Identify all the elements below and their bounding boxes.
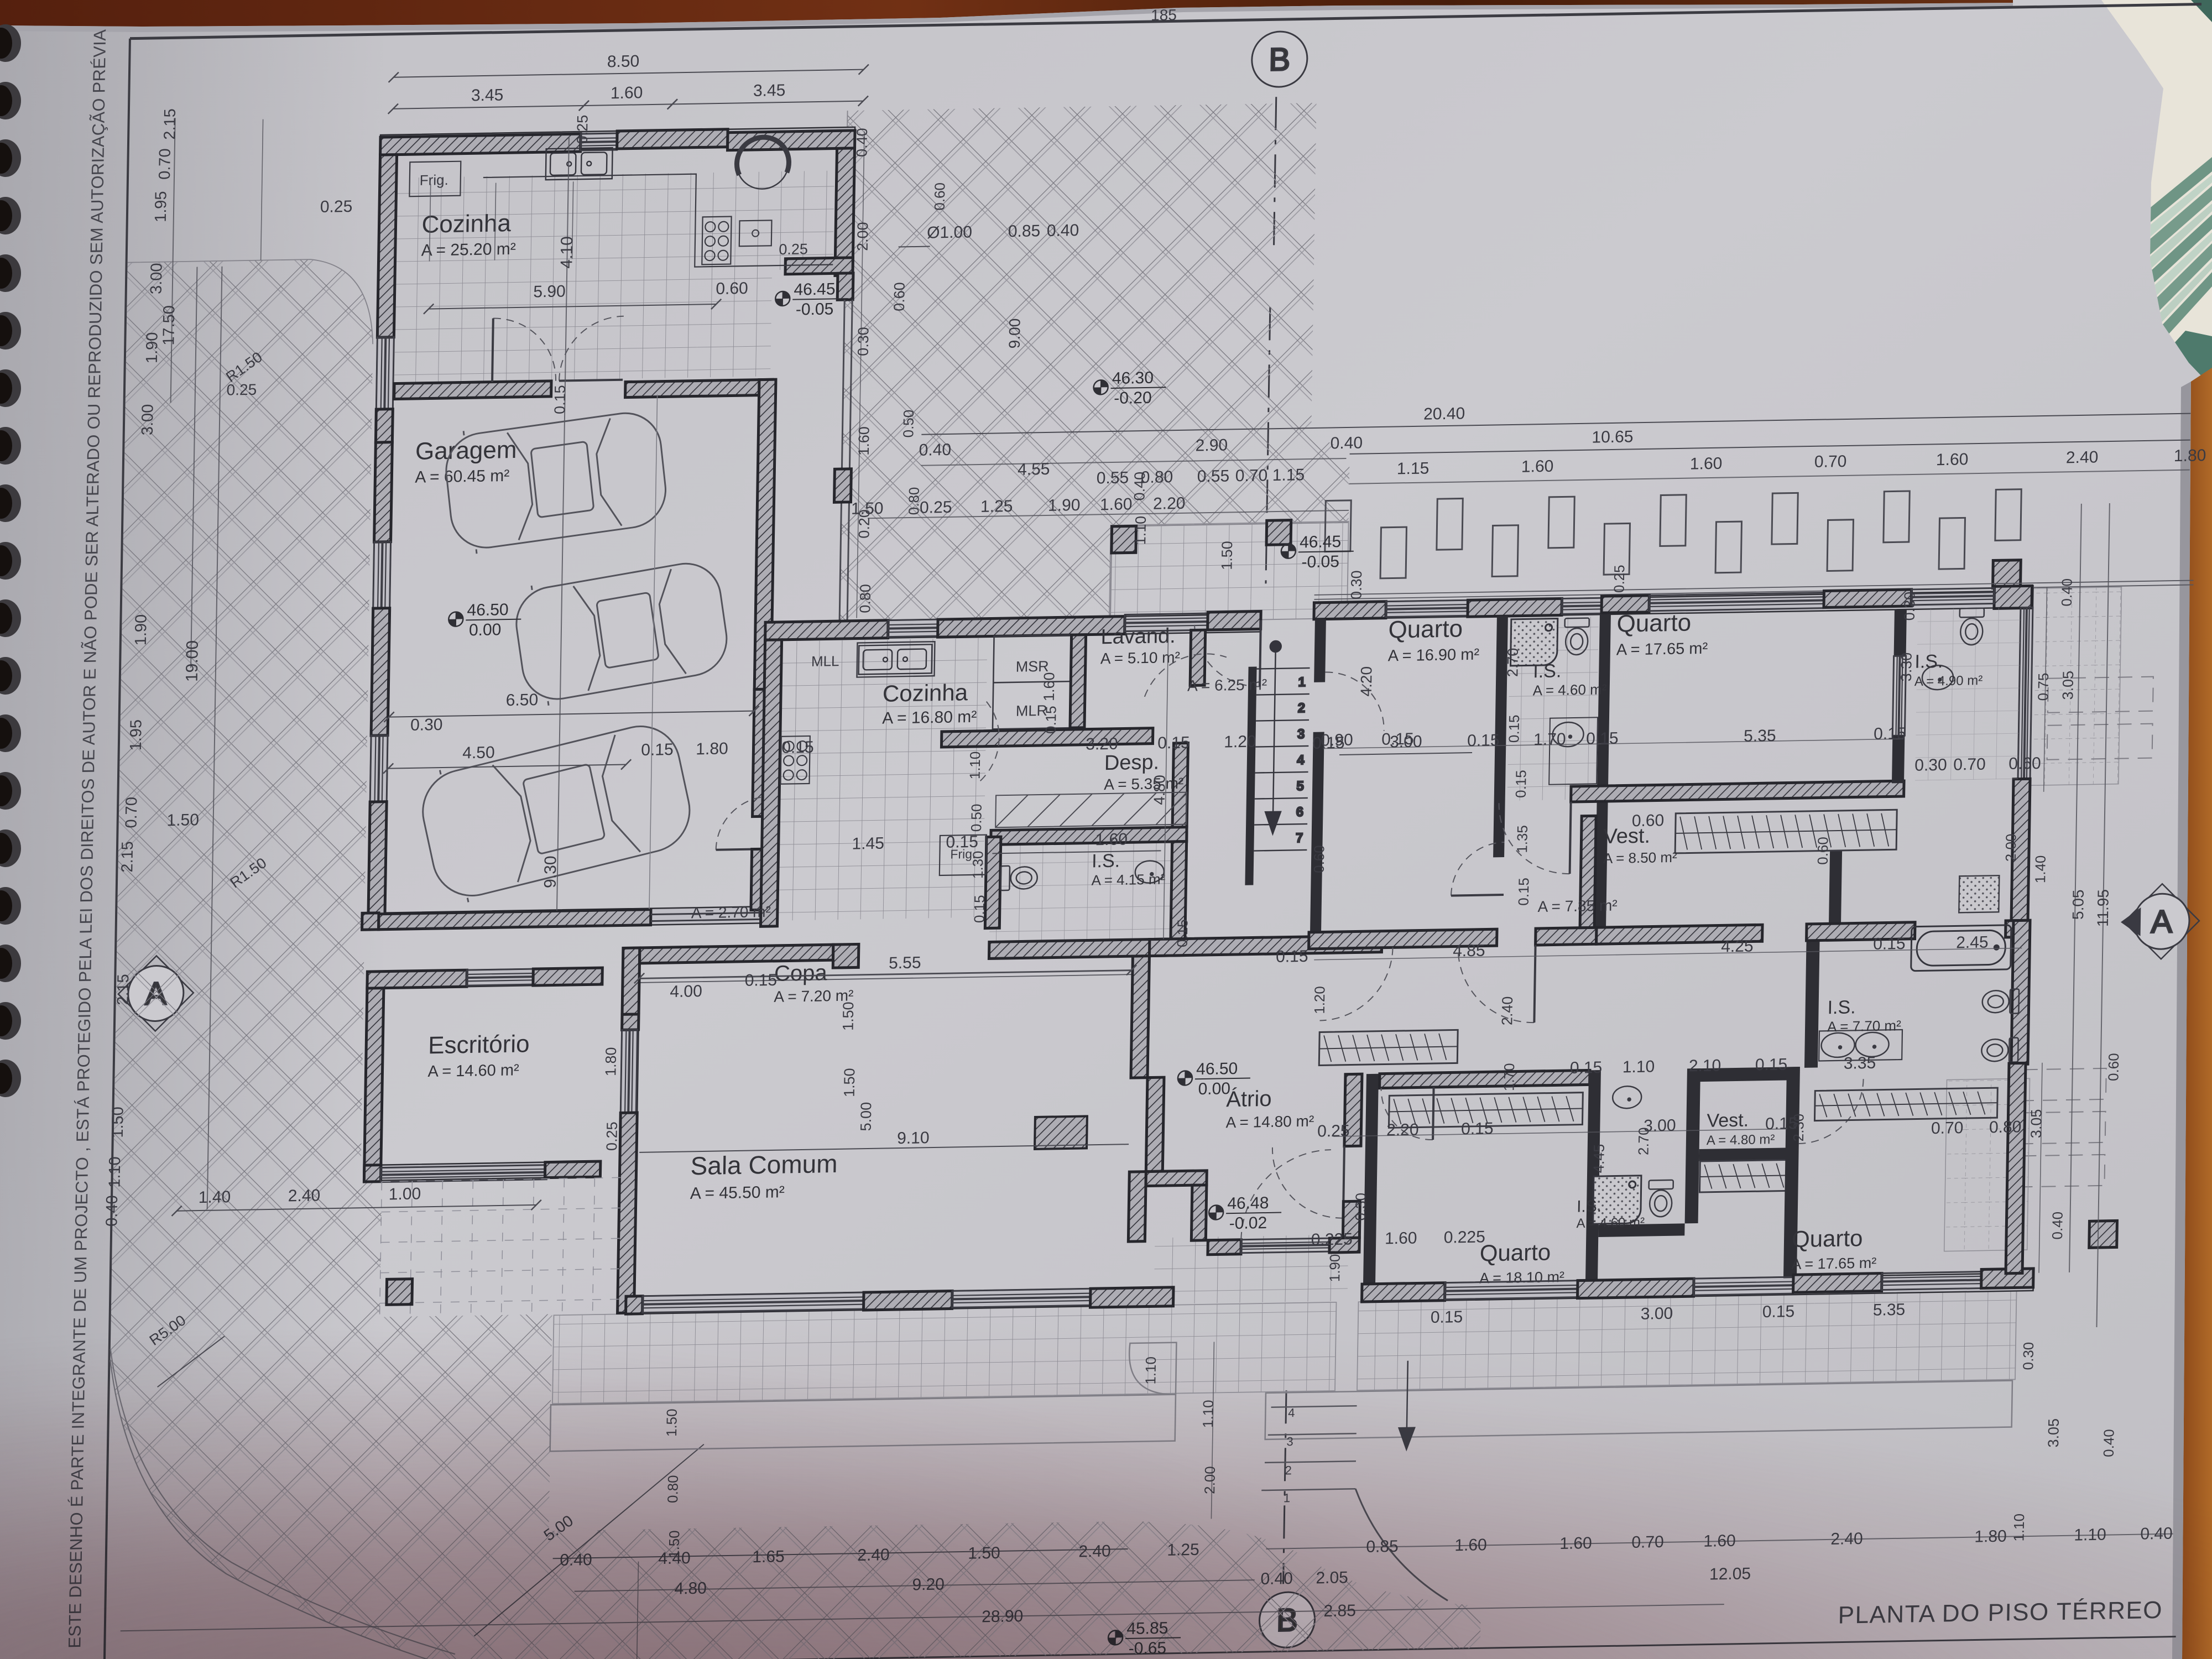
svg-text:A = 8.50 m²: A = 8.50 m²: [1603, 849, 1677, 867]
svg-text:3.45: 3.45: [753, 81, 786, 100]
svg-text:I.S.: I.S.: [1914, 651, 1943, 672]
svg-text:A: A: [2151, 904, 2173, 940]
svg-text:0.70: 0.70: [1814, 452, 1847, 471]
svg-text:3.30: 3.30: [1898, 653, 1915, 682]
svg-text:0.70: 0.70: [1235, 466, 1268, 485]
svg-text:46.45: 46.45: [794, 280, 836, 299]
svg-text:A = 4.90 m²: A = 4.90 m²: [1914, 673, 1983, 689]
svg-text:A = 7.85 m²: A = 7.85 m²: [1537, 897, 1617, 915]
svg-text:0.15: 0.15: [1276, 947, 1308, 966]
svg-text:185: 185: [1151, 6, 1177, 24]
svg-text:2.90: 2.90: [1195, 436, 1228, 455]
svg-text:0.55: 0.55: [1097, 468, 1129, 487]
svg-text:1.70: 1.70: [1533, 730, 1566, 749]
svg-text:5: 5: [1296, 779, 1304, 794]
svg-text:0.25: 0.25: [779, 241, 808, 258]
svg-text:46.50: 46.50: [467, 601, 509, 619]
svg-text:1.50: 1.50: [1218, 541, 1235, 570]
svg-text:0.85: 0.85: [1008, 222, 1041, 241]
svg-text:0.15: 0.15: [1042, 706, 1060, 734]
svg-text:1.35: 1.35: [1514, 825, 1531, 853]
svg-text:0.55: 0.55: [1197, 467, 1230, 486]
svg-text:1.60: 1.60: [1690, 455, 1723, 473]
svg-text:9.30: 9.30: [541, 855, 560, 888]
svg-text:1.80: 1.80: [696, 739, 728, 758]
svg-text:0.15: 0.15: [551, 385, 568, 414]
svg-text:0.80: 0.80: [905, 487, 922, 515]
svg-text:I.S.: I.S.: [1533, 660, 1562, 682]
svg-text:0.15: 0.15: [641, 740, 674, 759]
svg-text:0.30: 0.30: [855, 327, 872, 356]
svg-text:4.10: 4.10: [557, 236, 576, 269]
svg-text:0.25: 0.25: [920, 498, 952, 517]
svg-text:0.60: 0.60: [1632, 811, 1665, 830]
svg-text:2.15: 2.15: [161, 108, 179, 140]
svg-text:A = 60.45 m²: A = 60.45 m²: [415, 467, 509, 487]
svg-text:0.40: 0.40: [1131, 472, 1148, 501]
svg-text:0.70: 0.70: [123, 797, 141, 828]
svg-text:20.40: 20.40: [1423, 404, 1465, 423]
svg-text:1.60: 1.60: [855, 426, 873, 456]
svg-text:A = 4.15 m²: A = 4.15 m²: [1091, 870, 1165, 888]
svg-text:1.40: 1.40: [2032, 855, 2049, 883]
svg-text:Ø1.00: Ø1.00: [927, 223, 972, 242]
svg-text:1.15: 1.15: [1397, 459, 1430, 478]
svg-text:0.50: 0.50: [900, 410, 917, 438]
svg-text:1.60: 1.60: [1041, 672, 1058, 701]
svg-text:0.40: 0.40: [919, 441, 951, 460]
svg-text:1.10: 1.10: [1132, 516, 1149, 545]
svg-text:0.15: 0.15: [1157, 734, 1190, 753]
svg-text:4: 4: [1297, 753, 1305, 768]
svg-text:1.60: 1.60: [1936, 450, 1969, 469]
svg-text:2.70: 2.70: [1504, 648, 1521, 677]
svg-text:0.25: 0.25: [320, 197, 353, 216]
svg-text:3.20: 3.20: [1086, 735, 1118, 754]
svg-text:1.15: 1.15: [1272, 466, 1305, 484]
svg-text:A = 4.60 m²: A = 4.60 m²: [1533, 681, 1607, 698]
svg-text:0.15: 0.15: [971, 895, 988, 923]
svg-text:0.15: 0.15: [946, 833, 978, 852]
svg-text:0.15: 0.15: [1515, 878, 1532, 906]
svg-text:5.35: 5.35: [1744, 727, 1776, 745]
svg-text:0.20: 0.20: [855, 509, 873, 539]
svg-text:6: 6: [1296, 805, 1304, 820]
svg-text:1.90: 1.90: [143, 332, 161, 363]
svg-text:1.60: 1.60: [611, 84, 643, 102]
svg-text:0.15: 0.15: [744, 971, 777, 990]
svg-text:1.95: 1.95: [152, 191, 170, 222]
svg-text:8.50: 8.50: [607, 52, 640, 71]
svg-text:B: B: [1269, 41, 1291, 78]
svg-text:A = 17.65 m²: A = 17.65 m²: [1616, 640, 1708, 659]
svg-text:3.00: 3.00: [148, 263, 166, 294]
svg-text:0.25: 0.25: [1611, 565, 1628, 593]
svg-text:7: 7: [1296, 831, 1303, 846]
svg-text:5.05: 5.05: [2069, 889, 2087, 920]
svg-text:0.25: 0.25: [574, 115, 591, 144]
svg-text:3.00: 3.00: [1390, 733, 1422, 752]
svg-text:2.40: 2.40: [2066, 448, 2099, 467]
svg-text:4.50: 4.50: [462, 743, 495, 762]
svg-text:0.70: 0.70: [1953, 755, 1986, 774]
svg-text:1.60: 1.60: [1095, 830, 1128, 849]
svg-text:6.50: 6.50: [506, 691, 539, 709]
svg-text:0.40: 0.40: [1047, 221, 1079, 240]
svg-text:5.90: 5.90: [533, 282, 566, 301]
svg-text:0.15: 0.15: [1874, 724, 1906, 743]
svg-text:11.95: 11.95: [2094, 889, 2112, 927]
svg-text:1.50: 1.50: [166, 811, 199, 830]
svg-text:4.80: 4.80: [1151, 775, 1168, 805]
svg-text:-0.20: -0.20: [1114, 389, 1152, 408]
svg-text:1.60: 1.60: [1521, 457, 1554, 476]
svg-text:2: 2: [1298, 701, 1306, 716]
svg-text:46.45: 46.45: [1300, 533, 1342, 551]
svg-text:0.50: 0.50: [968, 804, 985, 832]
svg-text:0.15: 0.15: [1174, 919, 1191, 947]
svg-text:19.00: 19.00: [183, 640, 202, 682]
svg-text:17.50: 17.50: [160, 305, 178, 346]
svg-text:Quarto: Quarto: [1616, 609, 1691, 638]
svg-text:1.90: 1.90: [1048, 496, 1081, 515]
svg-text:0.60: 0.60: [2008, 754, 2041, 773]
svg-text:0.60: 0.60: [891, 282, 908, 311]
svg-text:Copa: Copa: [774, 961, 828, 986]
svg-text:A = 16.90 m²: A = 16.90 m²: [1388, 646, 1480, 665]
svg-text:0.80: 0.80: [857, 584, 874, 613]
svg-text:0.15: 0.15: [1312, 734, 1345, 753]
svg-text:Lavand.: Lavand.: [1100, 624, 1176, 649]
svg-text:1.60: 1.60: [1100, 495, 1133, 514]
svg-text:0.30: 0.30: [410, 716, 443, 734]
svg-text:0.15: 0.15: [1873, 935, 1906, 953]
svg-text:0.40: 0.40: [2058, 578, 2075, 607]
svg-text:A = 16.80 m²: A = 16.80 m²: [882, 708, 977, 728]
svg-text:0.60: 0.60: [931, 182, 948, 211]
svg-text:10.65: 10.65: [1592, 427, 1634, 446]
svg-text:0.60: 0.60: [1814, 837, 1832, 865]
svg-text:0.70: 0.70: [156, 148, 174, 180]
svg-text:I.S.: I.S.: [1092, 851, 1120, 872]
svg-text:4.20: 4.20: [1358, 666, 1375, 697]
svg-text:2.20: 2.20: [1153, 494, 1186, 513]
svg-text:0.30: 0.30: [1914, 756, 1947, 775]
svg-text:2.45: 2.45: [1956, 933, 1989, 952]
svg-text:MLL: MLL: [811, 653, 839, 670]
svg-text:2.00: 2.00: [2002, 833, 2020, 862]
svg-text:3.45: 3.45: [471, 86, 504, 105]
svg-text:1.90: 1.90: [132, 614, 150, 646]
svg-text:-0.05: -0.05: [1301, 552, 1339, 571]
svg-text:1.10: 1.10: [967, 751, 984, 779]
svg-text:A = 6.25 m²: A = 6.25 m²: [1187, 676, 1267, 694]
svg-text:1.20: 1.20: [1224, 733, 1256, 752]
svg-text:2.00: 2.00: [854, 222, 872, 251]
svg-text:0.15: 0.15: [1467, 731, 1500, 750]
svg-text:0.75: 0.75: [2034, 672, 2052, 701]
svg-text:4.25: 4.25: [1721, 937, 1754, 956]
svg-text:46.30: 46.30: [1112, 369, 1154, 388]
svg-text:1.80: 1.80: [2174, 446, 2206, 465]
svg-text:0.15: 0.15: [1512, 770, 1530, 798]
svg-text:Cozinha: Cozinha: [421, 210, 512, 238]
svg-text:3.05: 3.05: [2059, 671, 2077, 700]
svg-text:Garagem: Garagem: [415, 436, 517, 465]
svg-text:2.15: 2.15: [118, 841, 137, 873]
svg-text:0.60: 0.60: [716, 279, 748, 298]
svg-text:Frig.: Frig.: [420, 171, 448, 189]
svg-text:1.25: 1.25: [980, 497, 1013, 516]
svg-text:4.85: 4.85: [1453, 942, 1485, 961]
svg-text:0.30: 0.30: [1348, 570, 1365, 599]
svg-text:-0.05: -0.05: [796, 300, 834, 319]
svg-text:0.15: 0.15: [781, 738, 814, 757]
svg-text:0.40: 0.40: [853, 128, 870, 157]
svg-text:4.55: 4.55: [1018, 460, 1050, 479]
svg-text:1.95: 1.95: [127, 719, 145, 751]
svg-text:0.00: 0.00: [469, 620, 502, 639]
svg-text:0.30: 0.30: [1901, 591, 1918, 620]
svg-text:1.30: 1.30: [969, 851, 987, 879]
svg-text:A = 25.20 m²: A = 25.20 m²: [421, 240, 516, 260]
svg-text:1.45: 1.45: [852, 834, 884, 853]
svg-text:A = 2.70 m²: A = 2.70 m²: [691, 903, 771, 921]
svg-text:3.00: 3.00: [139, 404, 157, 435]
svg-text:5.55: 5.55: [889, 953, 921, 972]
svg-text:0.15: 0.15: [1505, 714, 1522, 743]
svg-text:Quarto: Quarto: [1388, 615, 1463, 643]
svg-text:A = 5.35 m²: A = 5.35 m²: [1104, 775, 1183, 793]
svg-text:0.15: 0.15: [1586, 729, 1619, 748]
svg-text:Cozinha: Cozinha: [883, 679, 968, 707]
svg-text:3: 3: [1297, 727, 1305, 742]
svg-text:0.60: 0.60: [1311, 845, 1328, 873]
svg-text:9.00: 9.00: [1006, 318, 1024, 348]
svg-text:0.40: 0.40: [1330, 434, 1363, 452]
svg-text:1: 1: [1298, 675, 1306, 690]
svg-text:Desp.: Desp.: [1104, 750, 1160, 775]
